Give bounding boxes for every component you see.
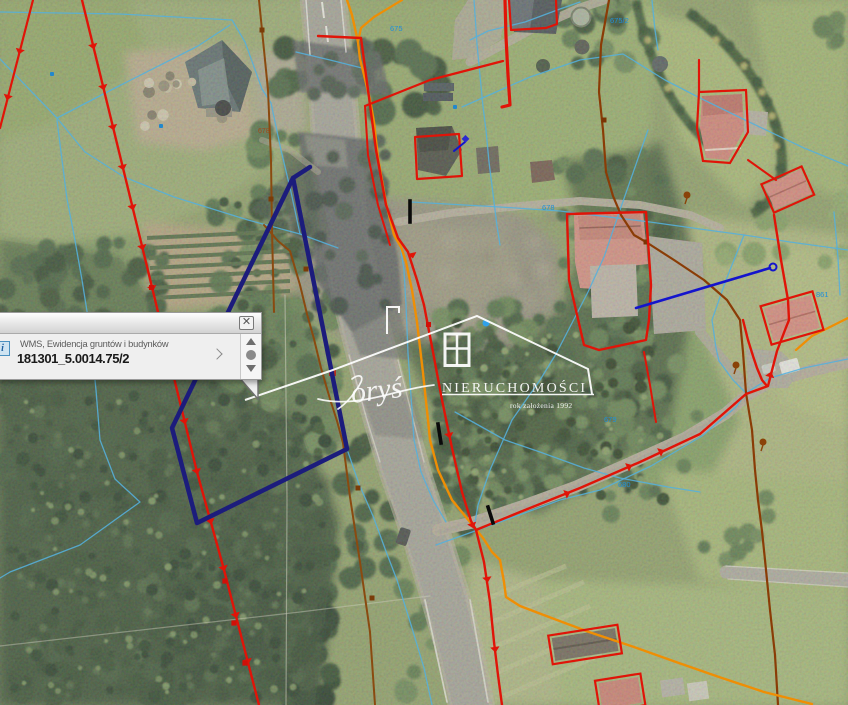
svg-text:oryś: oryś	[349, 371, 406, 410]
svg-text:678: 678	[258, 128, 270, 135]
svg-text:675: 675	[390, 24, 403, 33]
svg-text:679: 679	[604, 415, 617, 424]
svg-text:678: 678	[542, 203, 555, 212]
svg-text:680: 680	[618, 480, 631, 489]
svg-text:rok założenia 1992: rok założenia 1992	[510, 401, 572, 410]
svg-text:861: 861	[816, 290, 829, 299]
svg-text:NIERUCHOMOŚCI: NIERUCHOMOŚCI	[442, 379, 587, 396]
svg-text:675/2: 675/2	[610, 16, 629, 25]
